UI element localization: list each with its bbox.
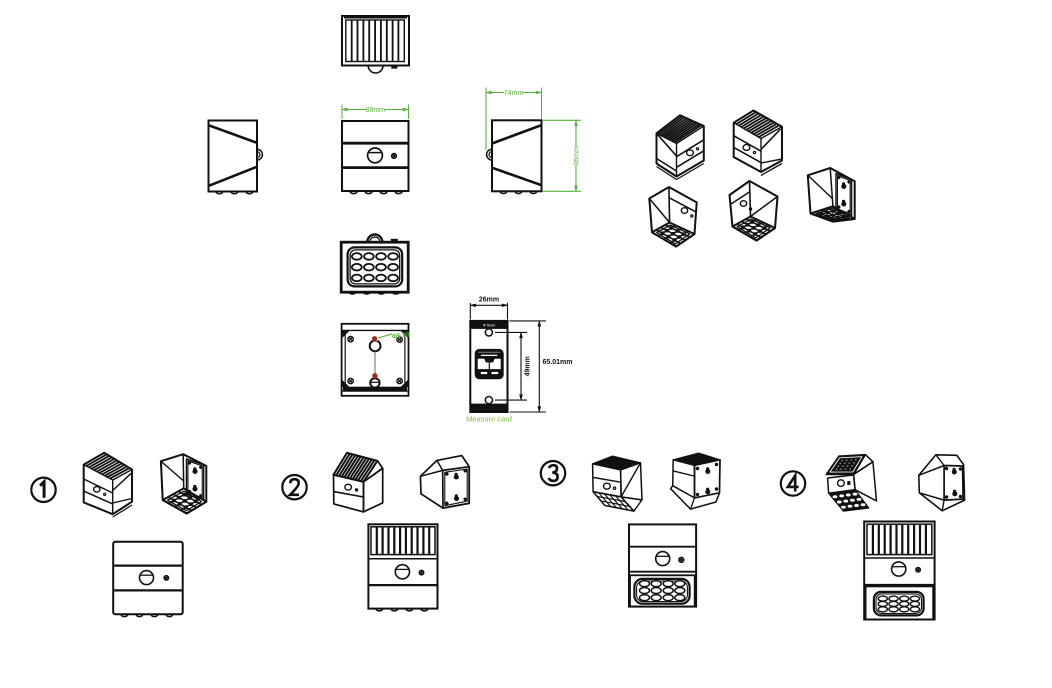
svg-text:Φ 5mm: Φ 5mm <box>483 324 496 328</box>
svg-text:65.01mm: 65.01mm <box>543 359 573 366</box>
svg-text:26mm: 26mm <box>479 297 499 304</box>
svg-text:Measure card: Measure card <box>466 415 512 424</box>
svg-text:49mm: 49mm <box>525 356 532 376</box>
svg-text:88mm: 88mm <box>366 107 386 114</box>
svg-text:96mm: 96mm <box>574 146 581 166</box>
svg-text:74mm: 74mm <box>504 90 524 97</box>
